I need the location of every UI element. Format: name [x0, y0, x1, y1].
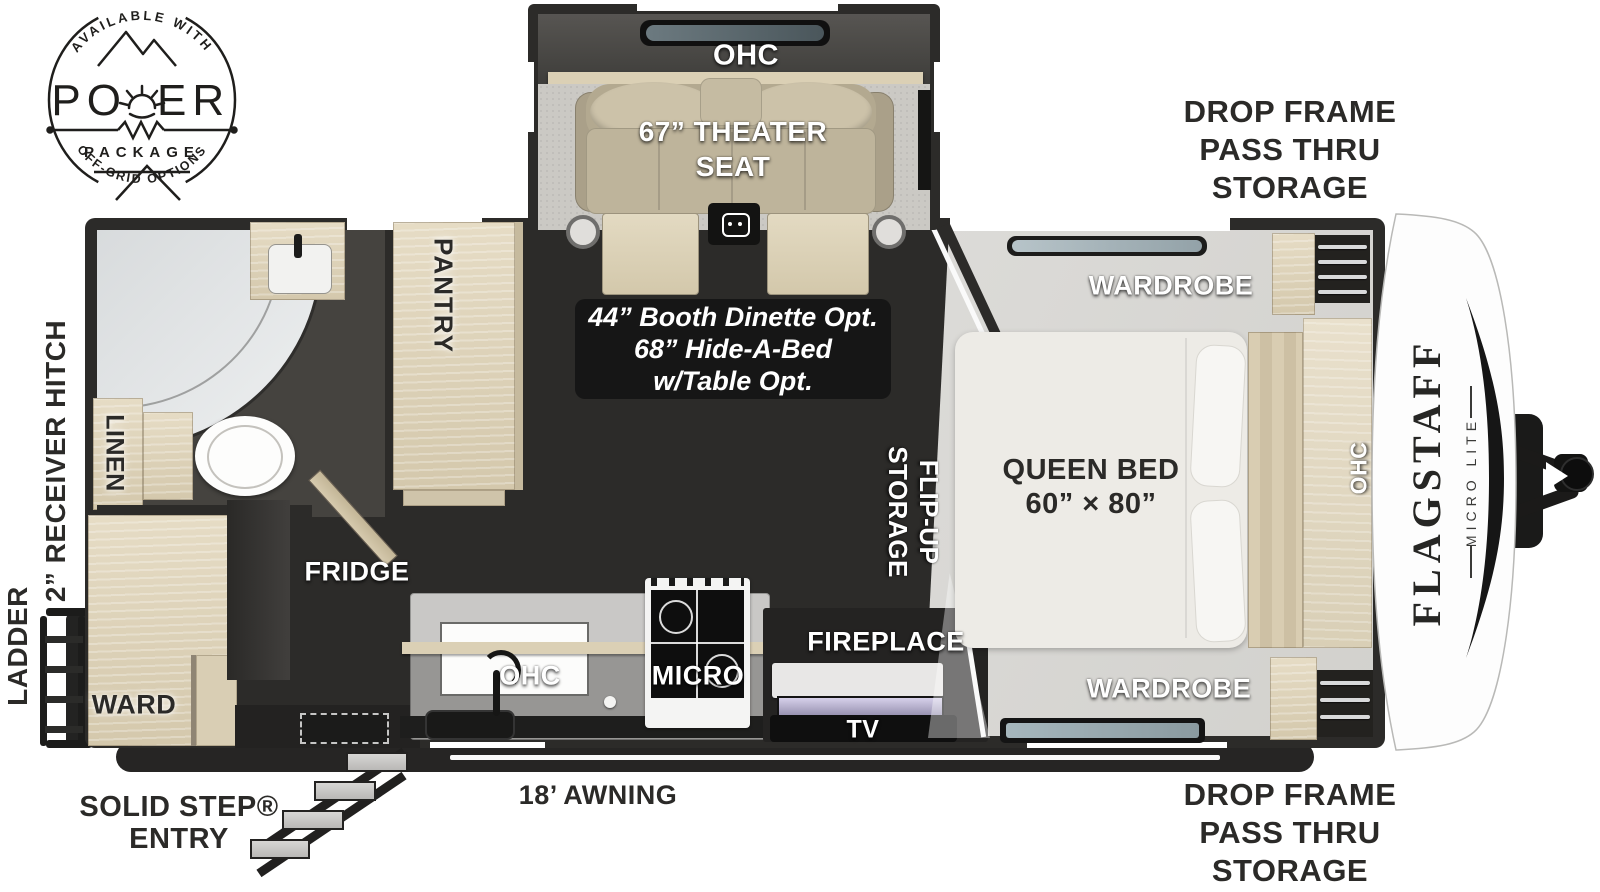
mountain-icon — [98, 32, 176, 66]
window-glass — [1012, 240, 1202, 252]
cupholder-dot — [728, 222, 732, 226]
step-tread — [346, 752, 408, 772]
wall-window-cutout — [430, 742, 545, 748]
label-pantry: PANTRY — [428, 238, 459, 354]
dinette-options-box: 44” Booth Dinette Opt. 68” Hide-A-Bed w/… — [575, 299, 891, 399]
label-line: 67” THEATER — [639, 114, 828, 149]
receiver-hitch-note: 2” RECEIVER HITCH — [37, 320, 75, 602]
counter-knob — [604, 696, 616, 708]
svg-text:AVAILABLE WITH: AVAILABLE WITH — [68, 8, 217, 55]
label-micro: MICRO — [652, 661, 745, 692]
slide-wall-cutout — [934, 62, 940, 132]
bathroom-faucet — [294, 234, 302, 258]
wall-window-cutout — [950, 218, 1230, 231]
power-package-badge: AVAILABLE WITH OFF-GRID OPTIONS PO ER PA… — [30, 2, 255, 202]
hitch-jack-knob — [1561, 458, 1593, 490]
seat-console — [708, 203, 760, 245]
toilet-tank — [143, 412, 193, 500]
speaker — [566, 215, 600, 249]
label-line: STORAGE — [882, 446, 913, 578]
ladder-rung — [45, 726, 83, 733]
badge-subtitle: PACKAGE — [84, 144, 200, 161]
toilet-seat — [207, 425, 283, 489]
badge-word-right: ER — [157, 76, 230, 125]
brand-series: MICRO LITE — [1463, 417, 1479, 547]
label-line: FLIP-UP — [913, 446, 944, 578]
brand-name: FLAGSTAFF — [1404, 338, 1449, 627]
pillow — [1189, 344, 1246, 488]
label-flip-up-storage: FLIP-UP STORAGE — [882, 446, 944, 578]
note-line: DROP FRAME — [1184, 93, 1397, 131]
badge-word-left: PO — [51, 76, 127, 125]
vanity-counter — [250, 222, 345, 300]
label-slide-ohc: OHC — [713, 40, 779, 73]
solid-step-note: SOLID STEP® ENTRY — [79, 791, 278, 855]
label-linen: LINEN — [100, 414, 129, 492]
burner — [659, 600, 693, 634]
note-line: STORAGE — [1184, 169, 1397, 207]
label-fridge: FRIDGE — [304, 557, 409, 588]
label-fireplace: FIREPLACE — [807, 627, 965, 658]
ladder-rung — [45, 696, 83, 703]
note-line: SOLID STEP® — [79, 791, 278, 823]
bed-seam — [1185, 338, 1187, 638]
slide-wall-cutout — [528, 62, 534, 132]
toilet — [195, 416, 295, 496]
slide-side-window — [918, 90, 931, 190]
drop-frame-note-bottom: DROP FRAME PASS THRU STORAGE — [1184, 776, 1397, 890]
label-line: SEAT — [639, 149, 828, 184]
label-queen-bed: QUEEN BED 60” × 80” — [1003, 453, 1180, 521]
awning-note: 18’ AWNING — [519, 776, 678, 814]
seat-footrest — [767, 213, 869, 295]
label-bed-ohc: OHC — [1346, 442, 1373, 495]
step-tread — [314, 781, 376, 801]
label-kitchen-ohc: OHC — [499, 661, 561, 692]
note-line: PASS THRU — [1184, 814, 1397, 852]
label-wardrobe-bottom: WARDROBE — [1087, 674, 1252, 705]
bedroom-window-top — [1007, 236, 1207, 256]
label-ward: WARD — [92, 690, 177, 721]
label-tv: TV — [847, 716, 880, 745]
ladder-note: LADDER — [0, 586, 37, 706]
label-theater-seat: 67” THEATER SEAT — [639, 114, 828, 184]
note-line: DROP FRAME — [1184, 776, 1397, 814]
front-cap: FLAGSTAFF MICRO LITE — [1296, 206, 1600, 758]
bedroom-window-bottom — [1000, 718, 1205, 743]
pillow — [1189, 499, 1246, 643]
speaker — [872, 215, 906, 249]
headboard — [1248, 332, 1303, 648]
grate-line — [651, 642, 744, 644]
kitchen-sink — [425, 710, 515, 740]
options-line: 44” Booth Dinette Opt. — [575, 301, 891, 333]
ladder-rung — [45, 666, 83, 673]
drop-frame-note-top: DROP FRAME PASS THRU STORAGE — [1184, 93, 1397, 207]
window-glass — [1006, 723, 1199, 738]
cupholder-icon — [722, 213, 750, 237]
step-tread — [282, 810, 344, 830]
badge-arc-top-text: AVAILABLE WITH — [68, 8, 217, 55]
ladder-rung — [45, 636, 83, 643]
note-line: ENTRY — [79, 823, 278, 855]
label-line: 60” × 80” — [1003, 487, 1180, 521]
note-line: STORAGE — [1184, 852, 1397, 890]
slide-wall-cutout — [637, 4, 838, 11]
seat-footrest — [602, 213, 699, 295]
options-line: 68” Hide-A-Bed — [575, 333, 891, 365]
pantry-step — [403, 490, 505, 506]
note-line: PASS THRU — [1184, 131, 1397, 169]
floorplan-canvas: AVAILABLE WITH OFF-GRID OPTIONS PO ER PA… — [0, 0, 1600, 892]
fridge — [227, 500, 290, 680]
label-wardrobe-top: WARDROBE — [1089, 271, 1254, 302]
label-line: QUEEN BED — [1003, 453, 1180, 487]
cupholder-dot — [738, 222, 742, 226]
awning-stripe — [450, 755, 1220, 760]
options-line: w/Table Opt. — [575, 365, 891, 397]
fireplace-unit — [772, 663, 943, 698]
stove-cooktop — [645, 578, 750, 728]
stove-knobs — [651, 578, 744, 586]
